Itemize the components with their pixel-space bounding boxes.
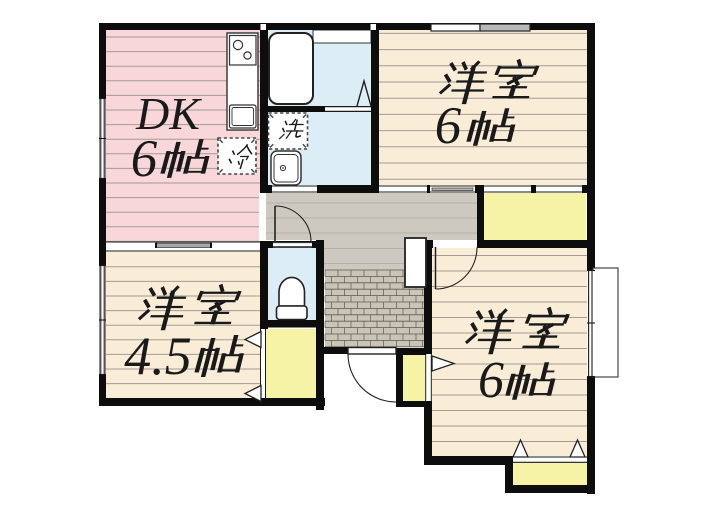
svg-text:6: 6 — [435, 97, 462, 155]
svg-text:4.5: 4.5 — [124, 326, 192, 386]
svg-text:6: 6 — [478, 352, 504, 409]
svg-text:6: 6 — [131, 130, 158, 188]
